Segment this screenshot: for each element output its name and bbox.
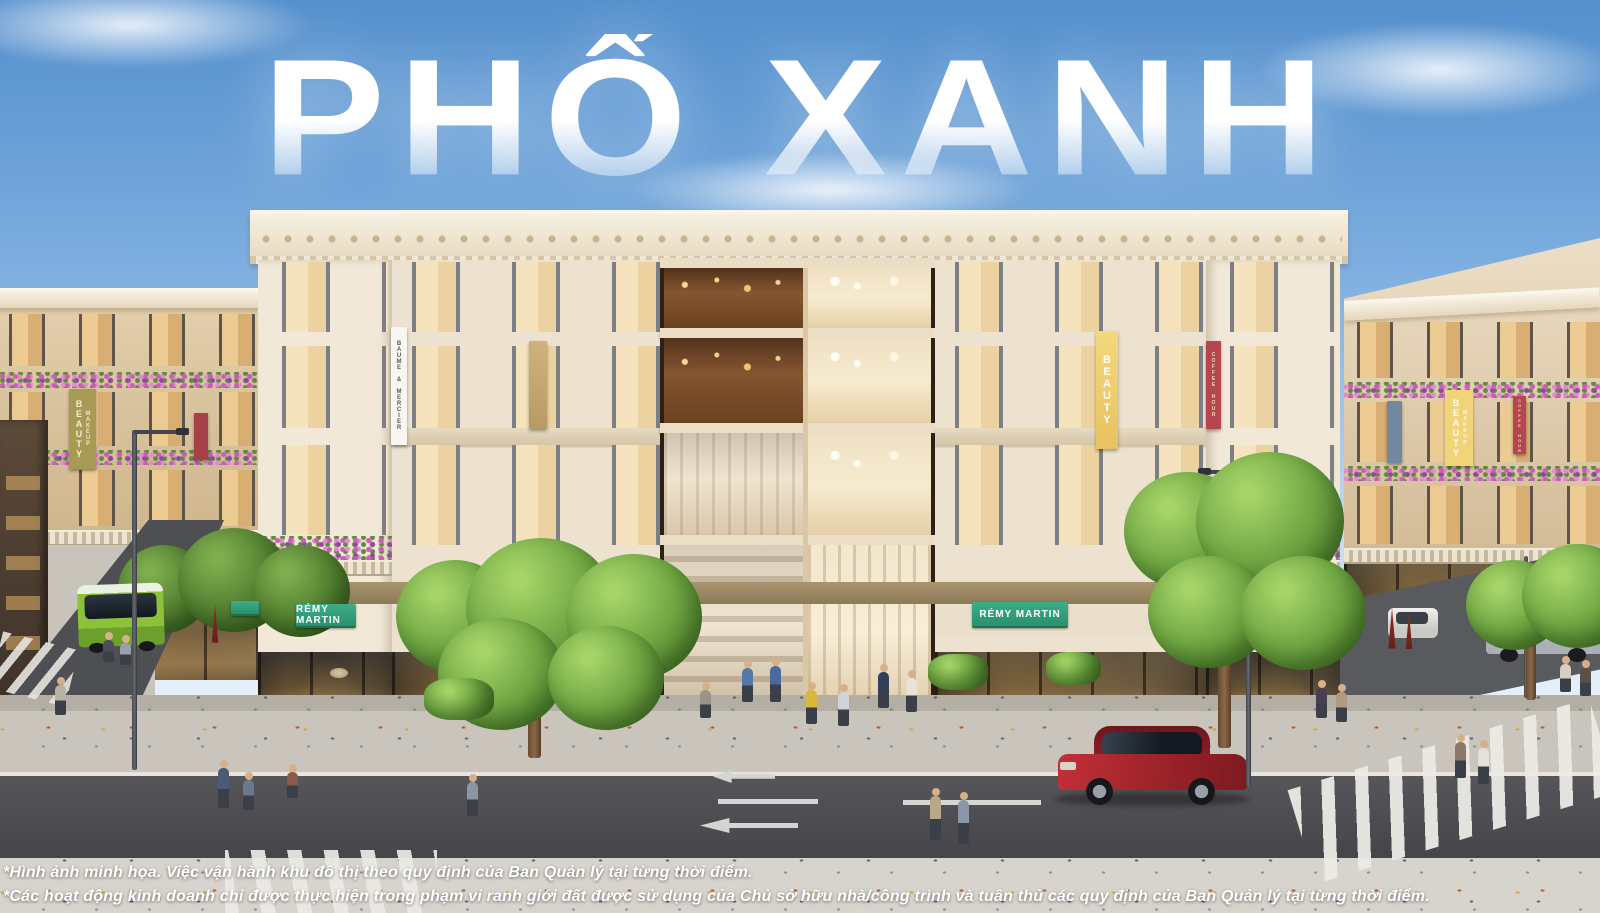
architectural-render-scene: PHỐ XANH: [0, 0, 1600, 913]
window-row: [935, 262, 1206, 332]
string-course: [392, 428, 660, 445]
corner-tower-left: [258, 260, 392, 702]
shrub: [1046, 652, 1101, 685]
pedestrian: [243, 780, 254, 810]
pedestrian: [958, 800, 969, 844]
pedestrian: [770, 666, 781, 702]
cafe-table: [330, 668, 348, 678]
window-row: [392, 445, 660, 545]
pedestrian: [1580, 668, 1591, 696]
corner-shop-sign: [231, 601, 259, 616]
lane-dash: [903, 800, 1041, 805]
banner-text: MAKEUP: [1462, 410, 1467, 446]
car-headlight: [1060, 762, 1076, 770]
window-row: [935, 346, 1206, 428]
floor-slab: [660, 258, 935, 268]
gold-banner: [529, 341, 547, 429]
shrub: [424, 678, 494, 720]
tree-foliage: [548, 626, 664, 730]
remy-martin-sign-left: RÉMY MARTIN: [296, 604, 356, 628]
pedestrian: [1478, 748, 1489, 784]
bar-floor-interior: [664, 338, 803, 423]
coffee-hour-banner-main: COFFEE HOUR: [1206, 341, 1221, 429]
pedestrian: [878, 672, 889, 708]
cutaway-section: [660, 258, 935, 702]
window-row: [392, 262, 660, 332]
tree-foliage: [1240, 556, 1366, 670]
window-row: [1210, 346, 1336, 428]
flower-boxes: [1344, 466, 1600, 481]
counter-floor-interior: [808, 338, 931, 423]
cornice-ornament: [256, 228, 1342, 250]
car-shadow: [1054, 792, 1250, 806]
blue-banner-right: [1387, 401, 1402, 463]
car-wheel: [1086, 778, 1113, 805]
page-title: PHỐ XANH: [0, 34, 1600, 200]
cafe-floor-interior: [808, 268, 931, 328]
white-car: [1388, 608, 1438, 638]
suv-wheel: [1500, 648, 1518, 662]
pedestrian: [1316, 688, 1327, 718]
remy-martin-sign-right: RÉMY MARTIN: [972, 602, 1068, 628]
boutique-floor-interior: [664, 433, 803, 535]
pedestrian: [1455, 742, 1466, 778]
cornice: [250, 210, 1348, 264]
coffee-hour-banner-right: COFFEE HOUR: [1513, 396, 1526, 454]
pedestrian: [103, 640, 114, 662]
floor-slab: [660, 423, 935, 433]
window-row: [262, 262, 388, 332]
banner-text: MAKEUP: [85, 411, 91, 447]
beauty-banner-main: BEAUTY: [1096, 331, 1118, 449]
pedestrian: [906, 678, 917, 712]
window-row: [1344, 322, 1600, 378]
disclaimer-line-1: *Hình ảnh minh họa. Việc vận hành khu đô…: [3, 864, 753, 882]
cutaway-center-column: [803, 268, 808, 702]
pedestrian: [55, 685, 66, 715]
lamp-arm: [134, 430, 180, 434]
shrub: [928, 654, 988, 690]
banner-text: BEAUTY: [74, 399, 83, 459]
pedestrian: [838, 692, 849, 726]
pedestrian: [467, 782, 478, 816]
pedestrian: [1336, 692, 1347, 722]
window-row: [1210, 262, 1336, 332]
window-row: [262, 346, 388, 428]
lane-dash: [718, 799, 818, 804]
pedestrian: [742, 668, 753, 702]
bus-wheel: [139, 641, 155, 652]
pedestrian: [218, 768, 229, 808]
street-lamp: [132, 430, 137, 770]
building-shadow: [0, 695, 1600, 711]
pedestrian: [287, 772, 298, 798]
beauty-makeup-banner-right: BEAUTY MAKEUP: [1445, 390, 1473, 466]
cornice: [1344, 287, 1600, 320]
disclaimer-line-2: *Các hoạt động kinh doanh chỉ được thực …: [3, 888, 1430, 906]
fashion-floor-interior: [808, 433, 931, 535]
car-wheel: [1188, 778, 1215, 805]
car-windows: [1396, 612, 1428, 624]
pedestrian: [930, 796, 941, 840]
floor-slab: [660, 328, 935, 338]
window-row: [262, 445, 388, 535]
pedestrian: [120, 643, 131, 665]
bus-windshield: [84, 593, 157, 619]
pedestrian: [806, 690, 817, 724]
pedestrian: [700, 690, 711, 718]
floor-slab: [660, 535, 935, 545]
restaurant-floor-interior: [664, 268, 803, 328]
lamp-head: [176, 428, 189, 435]
baume-mercier-banner: BAUME & MERCIER: [391, 327, 407, 445]
pedestrian: [1560, 664, 1571, 692]
banner-text: BEAUTY: [1451, 398, 1460, 458]
string-course: [935, 428, 1206, 445]
green-bus: [77, 583, 165, 654]
red-banner-left: [194, 413, 208, 460]
beauty-makeup-banner-left: BEAUTY MAKEUP: [69, 389, 96, 469]
window-row: [1344, 486, 1600, 544]
window-row: [392, 346, 660, 428]
lit-windows: [6, 450, 40, 650]
